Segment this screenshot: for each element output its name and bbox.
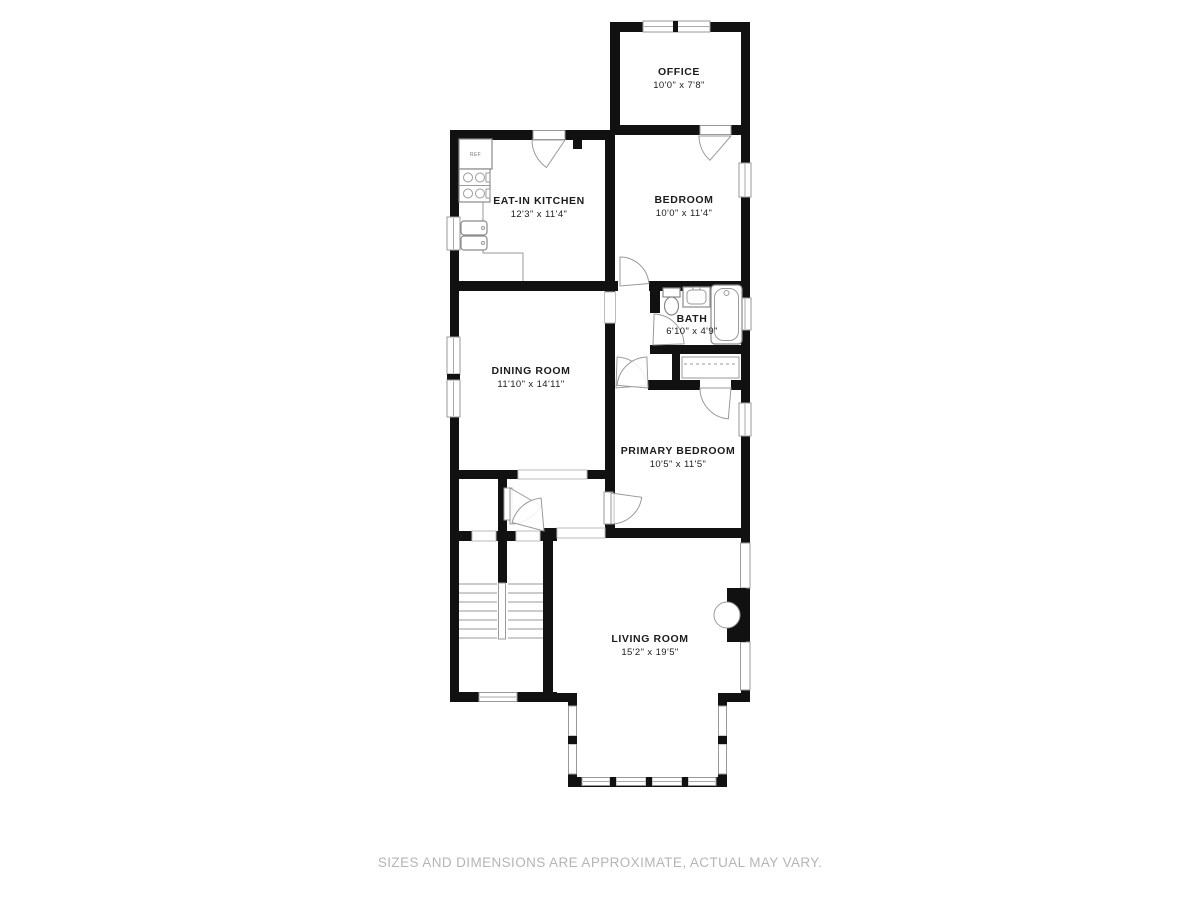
floor-plan-page: REF xyxy=(0,0,1200,900)
room-label-dining-room: DINING ROOM xyxy=(492,365,571,377)
room-dims-primary-bedroom: 10'5" x 11'5" xyxy=(650,459,707,470)
door-arc xyxy=(532,140,565,167)
window xyxy=(719,706,727,736)
room-dims-office: 10'0" x 7'8" xyxy=(653,80,705,91)
staircase xyxy=(459,583,543,639)
room-dims-bedroom: 10'0" x 11'4" xyxy=(656,208,713,219)
room-label-eat-in-kitchen: EAT-IN KITCHEN xyxy=(493,195,585,207)
floor-plan-svg: REF xyxy=(0,0,1200,900)
window xyxy=(741,642,751,690)
door-leaf xyxy=(700,126,731,135)
room-dims-bath: 6'10" x 4'9" xyxy=(666,326,718,337)
door-arc xyxy=(700,388,731,419)
kitchen-sink xyxy=(461,221,487,250)
room-label-primary-bedroom: PRIMARY BEDROOM xyxy=(621,445,736,457)
stove xyxy=(459,169,490,202)
toilet xyxy=(663,288,680,315)
closet xyxy=(682,357,739,378)
window xyxy=(741,543,751,588)
refrigerator-label: REF xyxy=(470,152,481,158)
bath-sink xyxy=(683,287,710,307)
room-label-bath: BATH xyxy=(677,313,708,325)
door-leaf xyxy=(533,131,565,140)
room-dims-living-room: 15'2" x 19'5" xyxy=(621,647,678,658)
door-arc xyxy=(620,257,649,286)
window xyxy=(719,744,727,774)
room-dims-eat-in-kitchen: 12'3" x 11'4" xyxy=(511,209,568,220)
room-label-living-room: LIVING ROOM xyxy=(611,633,688,645)
room-label-bedroom: BEDROOM xyxy=(654,194,713,206)
door-arc xyxy=(699,136,731,160)
window xyxy=(569,706,577,736)
door-arc xyxy=(611,493,642,524)
room-label-office: OFFICE xyxy=(658,66,700,78)
window xyxy=(569,744,577,774)
disclaimer-text: SIZES AND DIMENSIONS ARE APPROXIMATE, AC… xyxy=(0,855,1200,870)
fireplace xyxy=(714,588,746,642)
stair-stringer xyxy=(499,583,506,639)
room-dims-dining-room: 11'10" x 14'11" xyxy=(497,379,564,390)
